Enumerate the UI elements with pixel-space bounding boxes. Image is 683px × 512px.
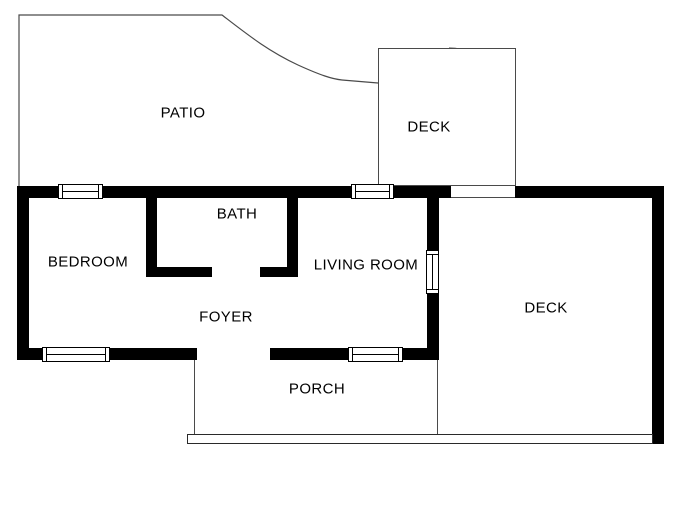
wall-segment-bottom [270, 348, 350, 360]
wall-segment-top [101, 186, 353, 198]
porch-left-edge-line [194, 360, 195, 435]
window-symbol [426, 250, 439, 294]
room-label-bedroom: BEDROOM [48, 254, 128, 271]
room-label-porch: PORCH [289, 381, 345, 398]
upper-deck-outline [378, 48, 516, 186]
wall-bath-south [260, 267, 298, 277]
window-symbol [348, 347, 403, 362]
step-landing [187, 434, 653, 444]
patio-outline [19, 15, 378, 186]
wall-segment-east [427, 292, 439, 360]
room-label-upper-deck: DECK [407, 119, 450, 136]
wall-segment-top [392, 186, 451, 198]
wall-segment-deck-right [652, 186, 664, 444]
window-symbol [42, 347, 110, 362]
porch-right-edge-line [437, 360, 438, 435]
wall-bath-south [146, 267, 212, 277]
window-symbol [58, 184, 103, 199]
wall-segment-bottom [110, 348, 197, 360]
window-symbol [351, 184, 394, 199]
floor-plan-canvas: PATIO DECK BEDROOM BATH LIVING ROOM FOYE… [0, 0, 683, 512]
wall-segment-east [427, 186, 439, 252]
room-label-bath: BATH [217, 206, 258, 223]
room-label-foyer: FOYER [199, 309, 253, 326]
wall-bath-west [146, 197, 157, 277]
deck-opening-sill-line [451, 197, 515, 198]
wall-bath-east [287, 197, 298, 277]
wall-segment-bottom [17, 348, 44, 360]
room-label-living-room: LIVING ROOM [314, 257, 418, 274]
wall-segment-deck-top [515, 186, 664, 198]
room-label-side-deck: DECK [524, 300, 567, 317]
room-label-patio: PATIO [161, 105, 206, 122]
wall-segment-left [17, 186, 29, 360]
